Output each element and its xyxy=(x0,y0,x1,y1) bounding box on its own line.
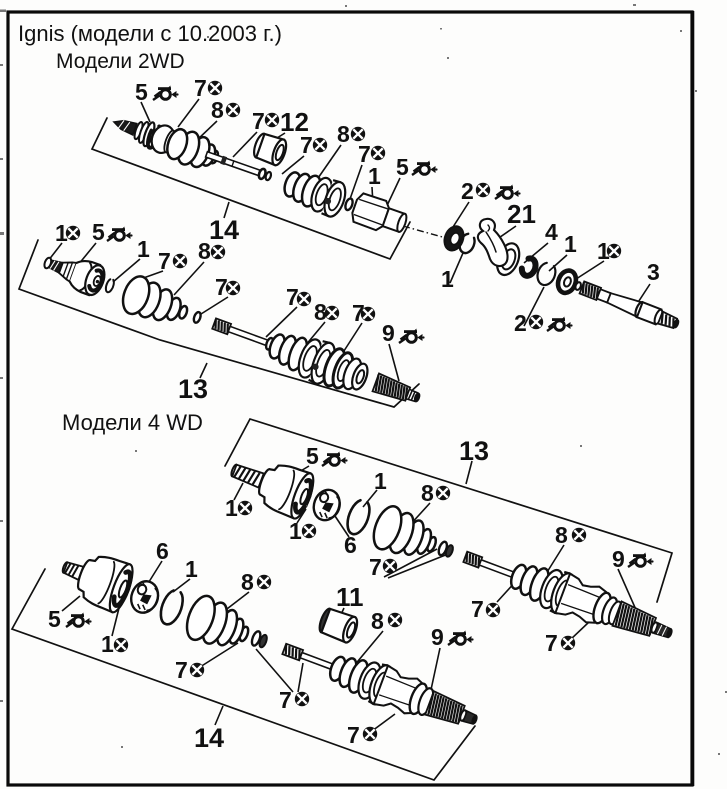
svg-text:14: 14 xyxy=(194,723,224,753)
svg-text:1: 1 xyxy=(441,266,454,292)
svg-text:5: 5 xyxy=(48,606,61,632)
svg-text:7: 7 xyxy=(194,75,207,101)
svg-text:1: 1 xyxy=(101,631,114,657)
svg-text:1: 1 xyxy=(225,495,238,521)
svg-text:7: 7 xyxy=(158,248,171,274)
svg-text:Модели 4 WD: Модели 4 WD xyxy=(62,410,203,435)
svg-text:7: 7 xyxy=(175,657,188,683)
svg-text:8: 8 xyxy=(421,480,434,506)
svg-text:7: 7 xyxy=(286,284,299,310)
svg-text:8: 8 xyxy=(555,522,568,548)
svg-text:1: 1 xyxy=(368,163,381,189)
svg-text:9: 9 xyxy=(431,624,444,650)
svg-text:7: 7 xyxy=(252,108,265,134)
svg-text:1: 1 xyxy=(374,468,387,494)
svg-text:7: 7 xyxy=(471,596,484,622)
svg-text:2: 2 xyxy=(461,178,474,204)
svg-text:2: 2 xyxy=(514,310,527,336)
svg-text:1: 1 xyxy=(289,518,302,544)
svg-text:6: 6 xyxy=(344,532,357,558)
svg-text:9: 9 xyxy=(382,320,395,346)
svg-text:13: 13 xyxy=(459,436,489,466)
svg-text:7: 7 xyxy=(545,630,558,656)
svg-text:7: 7 xyxy=(347,722,360,748)
svg-text:7: 7 xyxy=(369,554,382,580)
svg-text:11: 11 xyxy=(336,582,364,612)
svg-text:1: 1 xyxy=(185,556,198,582)
svg-text:1: 1 xyxy=(564,231,577,257)
svg-text:Модели 2WD: Модели 2WD xyxy=(56,50,185,73)
svg-text:13: 13 xyxy=(178,374,208,404)
svg-text:4: 4 xyxy=(545,219,558,245)
svg-text:5: 5 xyxy=(92,219,105,245)
svg-text:7: 7 xyxy=(300,132,313,158)
svg-text:8: 8 xyxy=(198,238,211,264)
svg-text:8: 8 xyxy=(241,569,254,595)
svg-text:8: 8 xyxy=(211,97,224,123)
svg-text:5: 5 xyxy=(135,79,148,105)
svg-text:7: 7 xyxy=(279,687,292,713)
svg-text:21: 21 xyxy=(507,199,536,229)
svg-text:5: 5 xyxy=(306,443,319,469)
svg-text:6: 6 xyxy=(156,538,169,564)
svg-text:8: 8 xyxy=(371,608,384,634)
svg-text:Ignis (модели с 10.2003 г.): Ignis (модели с 10.2003 г.) xyxy=(18,21,282,46)
svg-text:3: 3 xyxy=(647,259,660,285)
svg-text:1: 1 xyxy=(137,236,150,262)
svg-text:9: 9 xyxy=(612,546,625,572)
svg-text:5: 5 xyxy=(396,154,409,180)
svg-text:8: 8 xyxy=(337,121,350,147)
svg-text:14: 14 xyxy=(209,215,239,245)
